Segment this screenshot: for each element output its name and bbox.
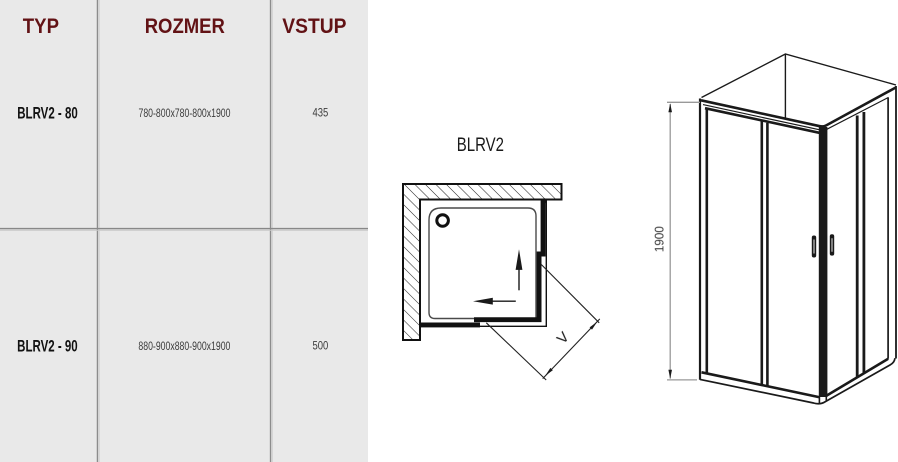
- svg-text:BLRV2 - 80: BLRV2 - 80: [17, 104, 78, 122]
- svg-text:BLRV2 - 90: BLRV2 - 90: [17, 337, 78, 355]
- svg-text:TYP: TYP: [23, 15, 59, 38]
- svg-text:780-800x780-800x1900: 780-800x780-800x1900: [139, 108, 231, 120]
- svg-text:V: V: [554, 329, 573, 348]
- svg-text:BLRV2: BLRV2: [457, 134, 504, 156]
- svg-text:ROZMER: ROZMER: [145, 15, 225, 38]
- svg-text:1900: 1900: [652, 226, 666, 252]
- svg-text:435: 435: [313, 108, 329, 120]
- svg-text:500: 500: [313, 340, 329, 352]
- svg-text:880-900x880-900x1900: 880-900x880-900x1900: [138, 341, 230, 353]
- svg-text:VSTUP: VSTUP: [282, 15, 346, 38]
